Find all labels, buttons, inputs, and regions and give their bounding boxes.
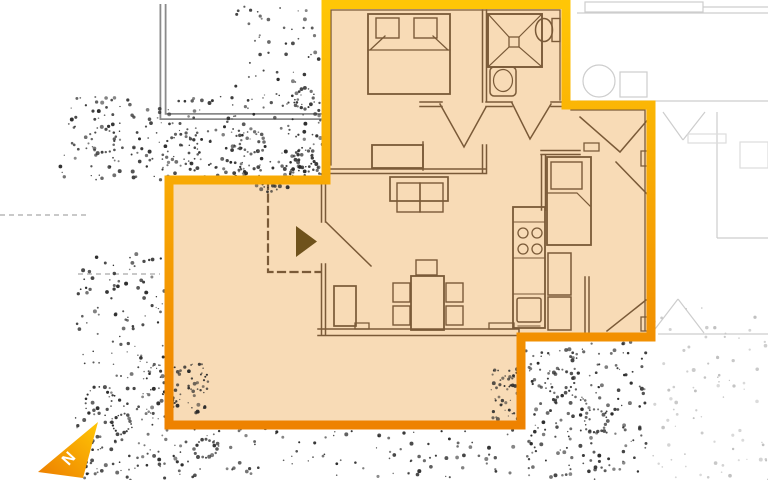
- neighbor-room-lines: [652, 112, 768, 334]
- north-arrow: N: [38, 422, 98, 478]
- unit-floor-fill: [169, 5, 651, 426]
- floor-plan-canvas: N: [0, 0, 768, 480]
- neighbor-bath-cabinet: [620, 72, 647, 97]
- neighbor-cabinet-1: [688, 134, 726, 143]
- floor-plan-svg: N: [0, 0, 768, 480]
- neighbor-cabinet-2: [740, 142, 768, 168]
- neighbor-wall-top: [585, 2, 703, 12]
- neighbor-bath-fixture: [583, 65, 615, 97]
- north-arrow-triangle: [38, 422, 98, 478]
- neighbor-wall-lines: [577, 7, 768, 101]
- site-boundary-dashes: [0, 215, 160, 274]
